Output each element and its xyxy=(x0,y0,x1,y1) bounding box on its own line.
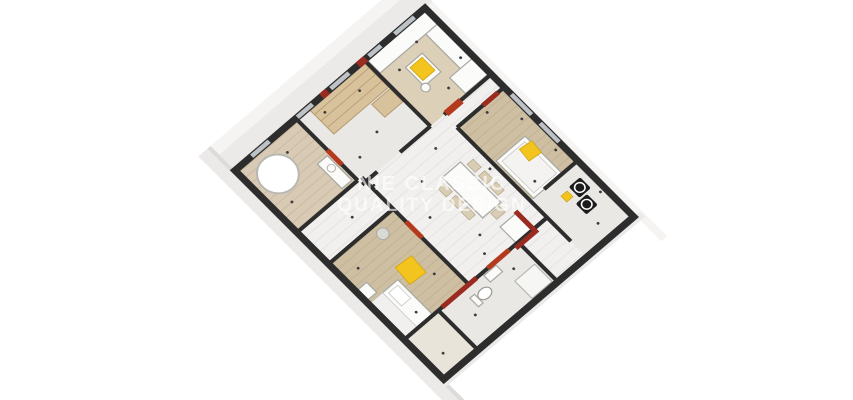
plan-rotated-group xyxy=(198,0,667,400)
floor-plan-render xyxy=(0,0,853,400)
floor-plan-screenshot: NIE CLASSIC QUALITY DESIGN xyxy=(0,0,853,400)
